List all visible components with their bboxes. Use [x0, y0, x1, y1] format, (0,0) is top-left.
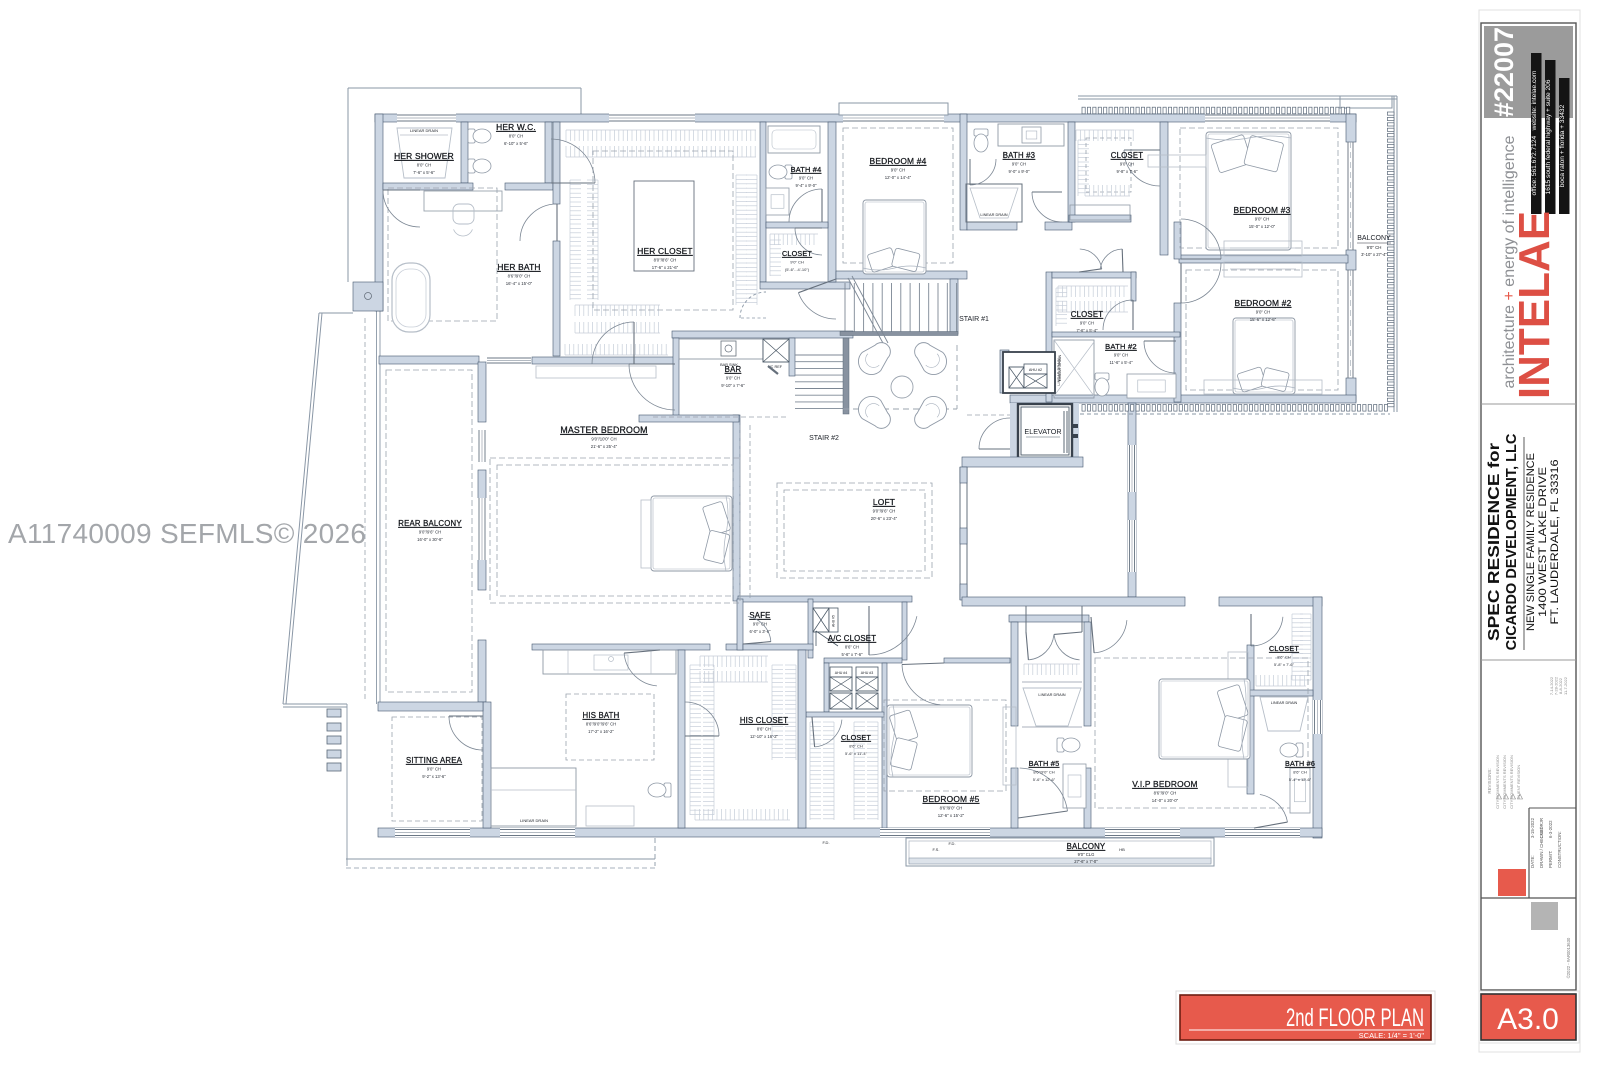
svg-text:ELEVATOR: ELEVATOR — [1024, 427, 1061, 436]
svg-text:21'-6" x 25'-4": 21'-6" x 25'-4" — [591, 444, 618, 449]
svg-text:6-3-2022: 6-3-2022 — [1548, 820, 1553, 838]
svg-text:F.D.: F.D. — [948, 841, 955, 846]
svg-text:REVISIONS:: REVISIONS: — [1487, 768, 1492, 793]
svg-text:A3.0: A3.0 — [1497, 1003, 1559, 1036]
svg-text:LINEAR DRAIN: LINEAR DRAIN — [1058, 354, 1062, 381]
svg-text:5'-8" x 7'-6": 5'-8" x 7'-6" — [1274, 662, 1295, 667]
svg-text:(5'-6"...4'-10"): (5'-6"...4'-10") — [785, 267, 810, 272]
svg-text:11-7-2022: 11-7-2022 — [1563, 676, 1568, 695]
svg-text:9'0"/9'6" CH: 9'0"/9'6" CH — [419, 530, 441, 535]
svg-text:17'-6" x 21'-6": 17'-6" x 21'-6" — [652, 265, 679, 270]
svg-text:9'0" CH: 9'0" CH — [891, 168, 906, 173]
svg-text:9'-2" x 13'-6": 9'-2" x 13'-6" — [422, 774, 446, 779]
svg-text:BEDROOM #3: BEDROOM #3 — [1234, 205, 1291, 215]
svg-text:8'6" CH: 8'6" CH — [1277, 655, 1291, 660]
svg-text:9'0" CH: 9'0" CH — [790, 260, 804, 265]
svg-text:FT. LAUDERDALE, FL 33316: FT. LAUDERDALE, FL 33316 — [1549, 460, 1561, 625]
svg-text:HER SHOWER: HER SHOWER — [394, 151, 454, 161]
svg-text:5'-6" x 12'-6": 5'-6" x 12'-6" — [1033, 777, 1056, 782]
svg-text:BEDROOM #5: BEDROOM #5 — [923, 794, 980, 804]
svg-text:BALCONY: BALCONY — [1067, 842, 1106, 851]
svg-text:NEW SINGLE FAMILY RESIDENCE: NEW SINGLE FAMILY RESIDENCE — [1525, 453, 1537, 631]
svg-text:STAIR #2: STAIR #2 — [809, 435, 839, 442]
svg-text:AHU #5: AHU #5 — [832, 615, 836, 627]
svg-text:CLOSET: CLOSET — [841, 733, 871, 742]
svg-text:boca raton + florida + 334: boca raton + florida + 33432 — [1559, 104, 1566, 187]
svg-text:F.S.: F.S. — [933, 847, 940, 852]
svg-text:BALCONY: BALCONY — [1357, 235, 1391, 242]
svg-text:7'-6" x 5'-6": 7'-6" x 5'-6" — [413, 170, 435, 175]
svg-text:9'0" CH: 9'0" CH — [1255, 217, 1270, 222]
svg-text:5'-4" x 12'-6": 5'-4" x 12'-6" — [1289, 777, 1312, 782]
svg-text:9'-8" x 7'-6": 9'-8" x 7'-6" — [1116, 169, 1138, 174]
svg-text:9'-10" x 7'-6": 9'-10" x 7'-6" — [721, 383, 745, 388]
svg-text:5'-6" x 7'-6": 5'-6" x 7'-6" — [841, 652, 863, 657]
svg-text:AHU #4: AHU #4 — [835, 671, 848, 675]
svg-text:office: 561.672.7124 website: office: 561.672.7124 website: intelae.co… — [1531, 70, 1538, 195]
svg-text:AHU #2: AHU #2 — [1029, 368, 1042, 372]
svg-text:12'-0" x 14'-4": 12'-0" x 14'-4" — [885, 175, 912, 180]
svg-text:HIS CLOSET: HIS CLOSET — [740, 716, 788, 725]
svg-text:5'-6" x 11'-4": 5'-6" x 11'-4" — [845, 751, 868, 756]
svg-text:17'-2" x 16'-2": 17'-2" x 16'-2" — [588, 729, 614, 734]
svg-text:SPEC RESIDENCE for: SPEC RESIDENCE for — [1486, 443, 1503, 641]
svg-text:BATH #6: BATH #6 — [1285, 759, 1315, 768]
svg-text:PERMIT:: PERMIT: — [1548, 851, 1553, 868]
svg-text:CICARDO DEVELOPMENT, LLC: CICARDO DEVELOPMENT, LLC — [1504, 433, 1520, 650]
svg-text:HER BATH: HER BATH — [497, 262, 540, 272]
svg-text:CITY COMMENTS REVISION: CITY COMMENTS REVISION — [1502, 755, 1507, 809]
svg-text:BEDROOM #4: BEDROOM #4 — [870, 156, 927, 166]
svg-text:9'0"/9'6" CH: 9'0"/9'6" CH — [873, 509, 896, 514]
svg-text:CITY COMMENTS REVISION: CITY COMMENTS REVISION — [1495, 755, 1500, 809]
svg-text:8'0" CH: 8'0" CH — [417, 163, 432, 168]
svg-text:SITTING AREA: SITTING AREA — [406, 756, 463, 765]
svg-text:BATH #4: BATH #4 — [791, 165, 822, 174]
svg-text:LINEAR DRAIN: LINEAR DRAIN — [410, 128, 438, 133]
svg-text:16'-4" x 15'-0": 16'-4" x 15'-0" — [506, 281, 533, 286]
svg-text:1615 south federal highway +: 1615 south federal highway + suite 206 — [1545, 79, 1552, 194]
svg-text:BATH #2: BATH #2 — [1105, 342, 1137, 351]
svg-text:15'-0" x 12'-0": 15'-0" x 12'-0" — [1249, 224, 1276, 229]
svg-text:2nd FLOOR PLAN: 2nd FLOOR PLAN — [1286, 1004, 1424, 1032]
svg-text:9'0" CH: 9'0" CH — [726, 376, 740, 381]
svg-text:9'0" CH: 9'0" CH — [427, 767, 441, 772]
svg-text:9'0" CH: 9'0" CH — [753, 622, 767, 627]
svg-text:A11740009 SEFMLS© 2026: A11740009 SEFMLS© 2026 — [8, 518, 366, 549]
svg-text:3-15-2022: 3-15-2022 — [1530, 817, 1535, 838]
svg-text:9'-0" x 9'-0": 9'-0" x 9'-0" — [1008, 169, 1030, 174]
svg-text:CLOSET: CLOSET — [782, 249, 812, 258]
svg-text:9'0" CH: 9'0" CH — [1080, 321, 1094, 326]
svg-text:8'6" CH: 8'6" CH — [845, 645, 859, 650]
svg-text:V.I.P BEDROOM: V.I.P BEDROOM — [1132, 779, 1197, 789]
svg-text:STAIR #1: STAIR #1 — [959, 316, 989, 323]
svg-text:CLOSET: CLOSET — [1111, 151, 1143, 160]
svg-text:9'0" CH: 9'0" CH — [1367, 245, 1382, 250]
svg-text:12'-10" x 16'-2": 12'-10" x 16'-2" — [750, 734, 779, 739]
svg-text:1400 WEST LAKE DRIVE: 1400 WEST LAKE DRIVE — [1537, 467, 1549, 617]
svg-text:16'-0" x 30'-6": 16'-0" x 30'-6" — [417, 537, 443, 542]
svg-text:HER CLOSET: HER CLOSET — [637, 246, 693, 256]
svg-text:SAFE: SAFE — [749, 611, 770, 620]
svg-text:REAR BALCONY: REAR BALCONY — [398, 519, 462, 528]
svg-text:9'-4" x 9'-0": 9'-4" x 9'-0" — [795, 183, 817, 188]
svg-text:F.D.: F.D. — [822, 840, 829, 845]
svg-text:8'6"/9'0" CH: 8'6"/9'0" CH — [940, 806, 963, 811]
svg-text:LOFT: LOFT — [873, 497, 895, 507]
svg-text:LNJ / RJR: LNJ / RJR — [1539, 818, 1544, 838]
svg-text:11'-6" x 5'-4": 11'-6" x 5'-4" — [1109, 360, 1133, 365]
svg-text:INTELAE: INTELAE — [1510, 211, 1559, 399]
svg-text:CONSTRUCTION:: CONSTRUCTION: — [1557, 831, 1562, 868]
svg-text:#22007: #22007 — [1489, 27, 1519, 117]
svg-text:3'-10" x 27'-4": 3'-10" x 27'-4" — [1361, 252, 1387, 257]
svg-text:CLOSET: CLOSET — [1071, 310, 1103, 319]
svg-text:CITY COMMENTS REVISION: CITY COMMENTS REVISION — [1509, 755, 1514, 809]
svg-text:BATH #3: BATH #3 — [1003, 151, 1035, 160]
svg-text:A/C CLOSET: A/C CLOSET — [828, 634, 876, 643]
svg-text:BATH #5: BATH #5 — [1029, 759, 1060, 768]
svg-text:LINEAR DRAIN: LINEAR DRAIN — [520, 818, 548, 823]
svg-text:8'6"/9'0" CH: 8'6"/9'0" CH — [1154, 791, 1177, 796]
svg-text:CLOSET: CLOSET — [1269, 644, 1299, 653]
svg-text:14'-0" x 20'-0": 14'-0" x 20'-0" — [1152, 798, 1179, 803]
svg-text:LINEAR DRAIN: LINEAR DRAIN — [1271, 701, 1298, 705]
svg-text:9'0" CH: 9'0" CH — [1012, 162, 1026, 167]
svg-text:9'0" CH: 9'0" CH — [1256, 310, 1271, 315]
svg-text:9'0" CLG: 9'0" CLG — [1078, 852, 1095, 857]
svg-text:6'-10" x 5'-6": 6'-10" x 5'-6" — [504, 141, 529, 146]
svg-text:SCALE: 1/4" = 1'-0": SCALE: 1/4" = 1'-0" — [1359, 1031, 1425, 1040]
svg-text:8'6"/9'0"/9'6" CH: 8'6"/9'0"/9'6" CH — [586, 722, 616, 727]
svg-text:LINEAR DRAIN: LINEAR DRAIN — [980, 212, 1007, 217]
svg-text:9'0"/10'0" CH: 9'0"/10'0" CH — [591, 437, 616, 442]
svg-text:HIS BATH: HIS BATH — [583, 711, 620, 720]
svg-text:HB: HB — [1119, 847, 1125, 852]
svg-text:BAR: BAR — [725, 365, 742, 374]
svg-text:AHU #3: AHU #3 — [861, 671, 874, 675]
svg-text:DATE:: DATE: — [1530, 855, 1535, 868]
svg-text:©2022 - #AR0013630: ©2022 - #AR0013630 — [1566, 937, 1571, 978]
svg-text:8'0" CH: 8'0" CH — [509, 134, 524, 139]
svg-text:9'0" CH: 9'0" CH — [1114, 353, 1128, 358]
svg-text:20'-6" x 23'-4": 20'-6" x 23'-4" — [871, 516, 898, 521]
svg-text:MASTER BEDROOM: MASTER BEDROOM — [560, 425, 647, 435]
svg-text:9'0" CH: 9'0" CH — [1120, 162, 1134, 167]
svg-text:8'6" CH: 8'6" CH — [849, 744, 863, 749]
svg-text:8'6" CH: 8'6" CH — [1293, 770, 1307, 775]
svg-text:LINEAR DRAIN: LINEAR DRAIN — [1038, 692, 1065, 697]
svg-text:15'-6" x 12'-6": 15'-6" x 12'-6" — [1250, 317, 1277, 322]
svg-text:8'6"/9'0" CH: 8'6"/9'0" CH — [1033, 770, 1054, 775]
svg-text:HER W.C.: HER W.C. — [496, 122, 536, 132]
svg-text:9'0" CH: 9'0" CH — [799, 176, 813, 181]
svg-text:8'6" CH: 8'6" CH — [757, 727, 771, 732]
svg-text:8'0"/8'6" CH: 8'0"/8'6" CH — [654, 258, 677, 263]
svg-text:BEDROOM #2: BEDROOM #2 — [1235, 298, 1292, 308]
svg-text:8'6"/9'0" CH: 8'6"/9'0" CH — [508, 274, 531, 279]
svg-text:27'-6" x 7'-0": 27'-6" x 7'-0" — [1074, 859, 1098, 864]
svg-text:12'-6" x 15'-2": 12'-6" x 15'-2" — [938, 813, 965, 818]
svg-text:7'-6" x 5'-4": 7'-6" x 5'-4" — [1076, 328, 1098, 333]
